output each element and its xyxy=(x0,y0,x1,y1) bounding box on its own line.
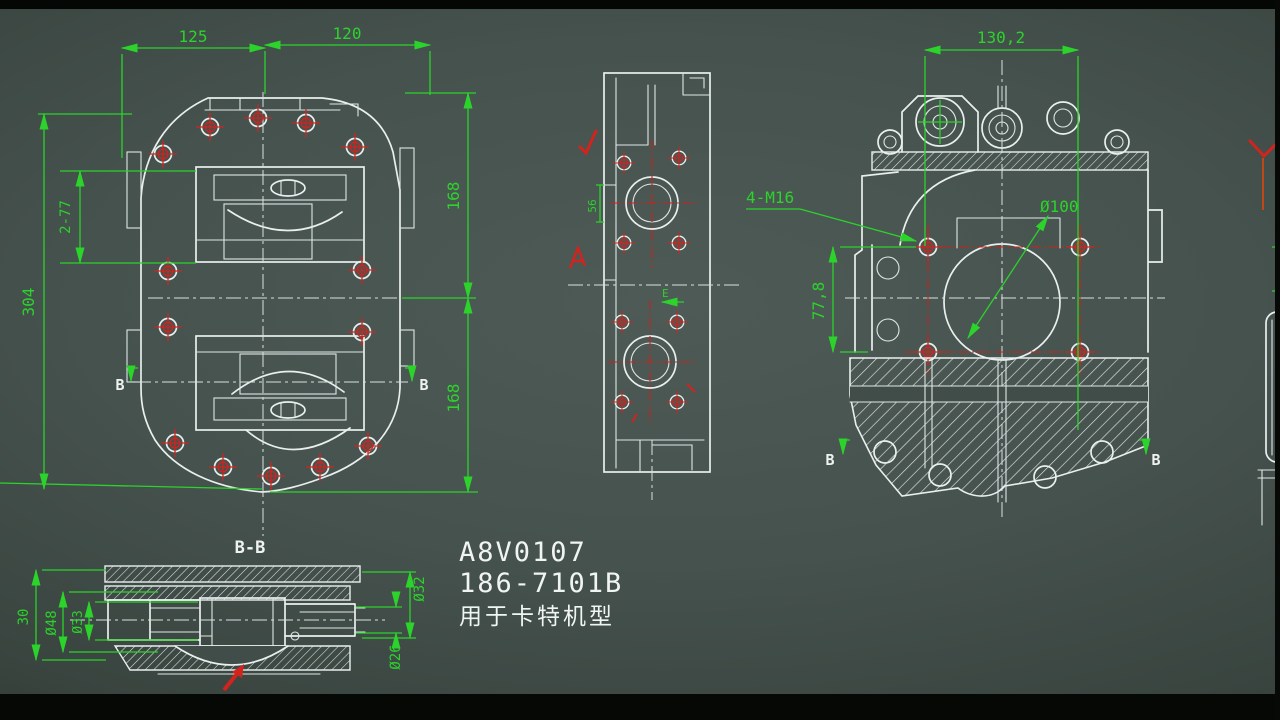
dim-d26-label: Ø26 xyxy=(388,644,404,669)
red-letter-a-mark-icon xyxy=(570,248,585,268)
rear-view: 130,2 4-M16 Ø100 77,8 B B xyxy=(746,28,1165,520)
dim-77-8-label: 77,8 xyxy=(809,282,828,321)
dim-168-lower-label: 168 xyxy=(444,384,463,413)
section-b-right-label: B xyxy=(419,376,428,394)
cad-drawing-canvas: 125 120 304 2-77 168 168 B B xyxy=(0,0,1280,720)
callout-d100-label: Ø100 xyxy=(1040,197,1079,216)
screen-bezel-bottom xyxy=(0,694,1280,720)
monitor-photo: 125 120 304 2-77 168 168 B B xyxy=(0,0,1280,720)
section-b-left-label: B xyxy=(115,376,124,394)
part-label: A8V0107 186-7101B 用于卡特机型 xyxy=(459,537,623,630)
part-note-cjk: 用于卡特机型 xyxy=(459,604,615,630)
part-number-line2: 186-7101B xyxy=(459,568,623,599)
dim-2-77-label: 2-77 xyxy=(58,200,74,234)
dim-120-label: 120 xyxy=(333,24,362,43)
callout-4-m16-label: 4-M16 xyxy=(746,188,794,207)
rear-section-b-left-label: B xyxy=(825,451,834,469)
red-tick-marks-icon xyxy=(632,384,695,422)
front-view: 125 120 304 2-77 168 168 B B xyxy=(0,24,478,536)
dim-30-label: 30 xyxy=(16,609,32,626)
dim-304-label: 304 xyxy=(19,288,38,317)
rear-section-b-right-label: B xyxy=(1151,451,1160,469)
dim-d33-label: Ø33 xyxy=(71,610,86,633)
dim-130-2-label: 130,2 xyxy=(977,28,1025,47)
section-bb-title: B-B xyxy=(235,538,266,558)
screen-bezel-right xyxy=(1275,0,1280,720)
dim-168-upper-label: 168 xyxy=(444,182,463,211)
screen-bezel-top xyxy=(0,0,1280,9)
datum-e-label: E xyxy=(662,287,669,300)
dim-d32-label: Ø32 xyxy=(412,576,428,601)
part-number-line1: A8V0107 xyxy=(459,537,587,568)
red-check-mark-icon xyxy=(580,131,596,153)
front-bolt-holes xyxy=(149,104,382,490)
side-dim-small-label: 56 xyxy=(586,199,599,212)
section-bb-view: B-B 30 Ø48 Ø33 Ø32 Ø26 xyxy=(16,538,428,690)
dim-125-label: 125 xyxy=(179,27,208,46)
front-dimensions xyxy=(0,45,478,492)
side-view: 56 E xyxy=(568,73,742,500)
dim-d48-label: Ø48 xyxy=(44,610,60,635)
